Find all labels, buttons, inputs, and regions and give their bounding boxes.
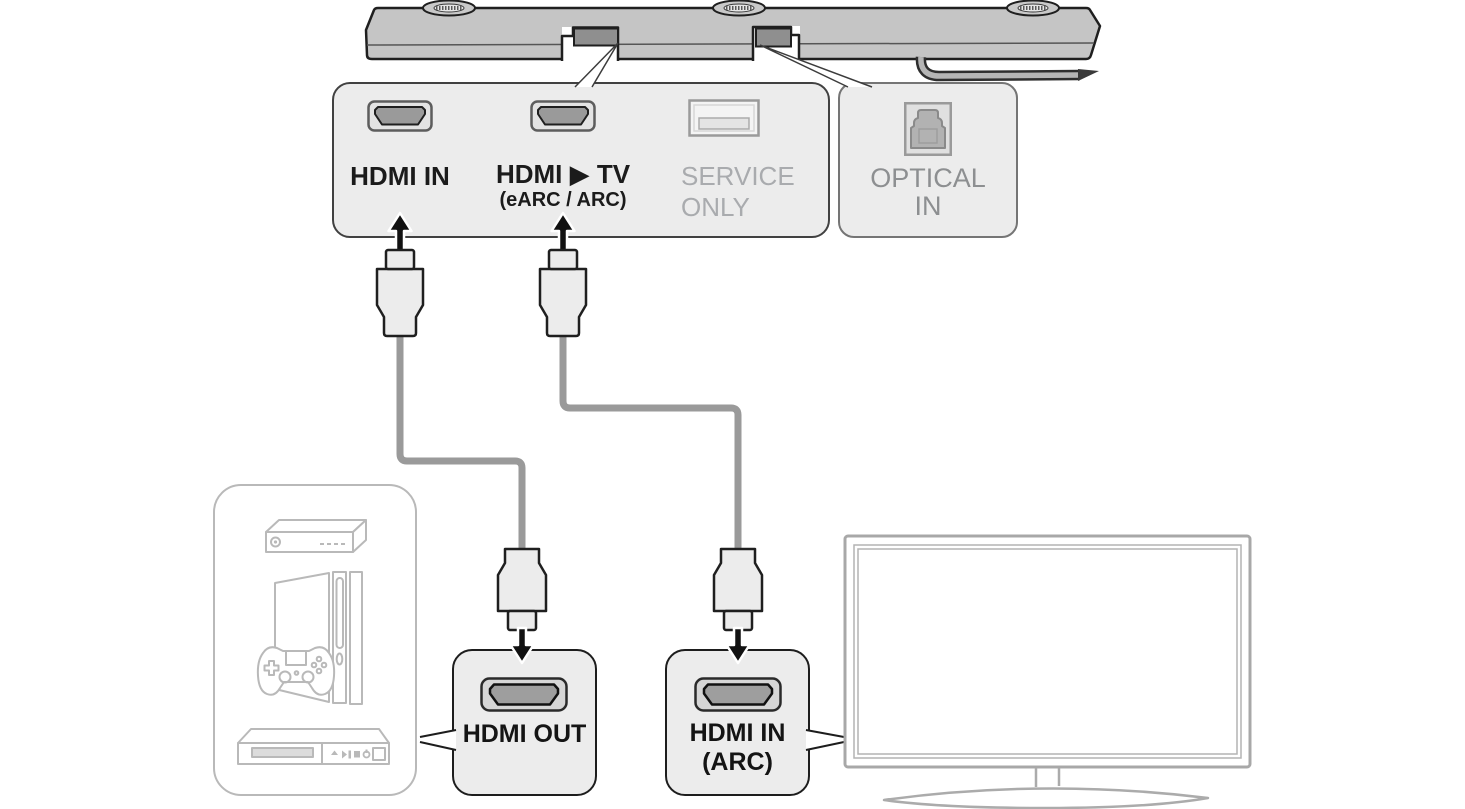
speaker-foot-icon [423,1,475,16]
optical-in-label: OPTICAL IN [838,164,1018,220]
external-devices-box [213,484,417,796]
hdmi-in-arc-line2: (ARC) [665,748,810,777]
optical-port-icon [904,102,952,156]
optical-line1: OPTICAL [838,164,1018,192]
soundbar-hdmi-notch [562,27,619,62]
tv-icon [845,536,1250,808]
hdmi-out-callout-tail [420,730,456,750]
usb-service-port-icon [688,99,760,137]
hdmi-connector-down [498,549,546,630]
hdmi-cable-left [400,332,522,552]
hdmi-cable-right [563,332,738,552]
hdmi-in-label: HDMI IN [340,161,460,191]
hdmi-in-arc-port-icon [694,677,782,712]
cord-cut-tip [1078,69,1099,81]
service-line2: ONLY [681,192,795,223]
speaker-foot-icon [1007,1,1059,16]
hdmi-tv-port-icon [530,100,596,132]
hdmi-connector-down [714,549,762,630]
optical-line2: IN [838,192,1018,220]
hdmi-in-arc-line1: HDMI IN [665,719,810,748]
hdmi-out-label: HDMI OUT [452,720,597,749]
service-only-label: SERVICE ONLY [681,161,795,223]
hdmi-out-port-icon [480,677,568,712]
speaker-foot-icon [713,1,765,16]
tv-stand-base [884,788,1208,808]
hdmi-connector-up [377,250,423,336]
hdmi-connector-up [540,250,586,336]
hdmi-tv-label: HDMI ▶ TV [483,159,643,189]
soundbar-optical-notch [752,26,800,62]
panel-pointer-fan [575,43,618,87]
tv-stand-neck [1036,768,1059,787]
hdmi-in-arc-label: HDMI IN (ARC) [665,719,810,777]
service-line1: SERVICE [681,161,795,192]
soundbar-illustration [366,1,1100,82]
soundbar-connection-diagram: HDMI IN HDMI ▶ TV (eARC / ARC) SERVICE O… [0,0,1465,809]
hdmi-tv-sublabel: (eARC / ARC) [483,188,643,212]
hdmi-in-arc-callout-tail [806,730,844,750]
hdmi-in-port-icon [367,100,433,132]
optical-pointer-fan [760,45,872,87]
power-cord [921,57,1099,81]
